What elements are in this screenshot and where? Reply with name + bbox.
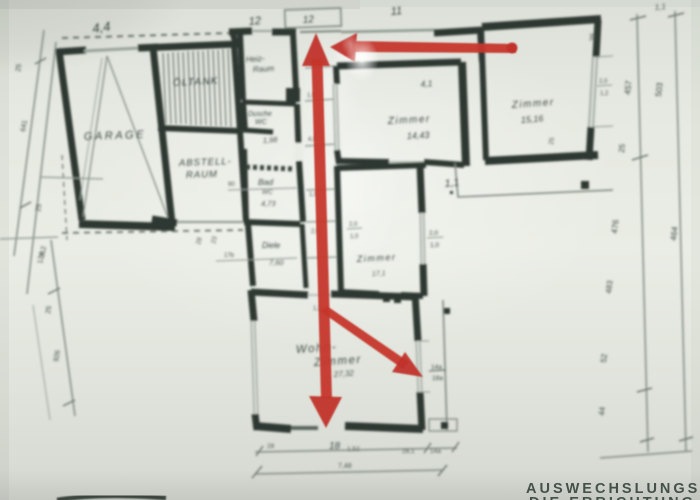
svg-text:ABSTELL-: ABSTELL-: [178, 156, 232, 169]
svg-text:25: 25: [15, 63, 23, 72]
svg-text:476: 476: [609, 219, 621, 235]
svg-text:GARAGE: GARAGE: [84, 129, 146, 143]
svg-text:ÖLTANK: ÖLTANK: [173, 75, 219, 89]
svg-text:11: 11: [390, 5, 402, 18]
svg-text:90: 90: [228, 182, 235, 188]
svg-text:1,1: 1,1: [654, 2, 666, 12]
svg-text:Zimmer: Zimmer: [356, 252, 397, 264]
svg-text:14a: 14a: [430, 448, 441, 455]
svg-text:Diele: Diele: [262, 241, 281, 250]
svg-text:28,1: 28,1: [402, 448, 415, 455]
svg-text:25: 25: [45, 305, 53, 314]
svg-text:12: 12: [248, 15, 261, 28]
svg-text:18a: 18a: [432, 375, 443, 382]
svg-text:464: 464: [668, 226, 680, 242]
svg-text:Zimmer: Zimmer: [387, 114, 431, 127]
svg-text:4,73: 4,73: [261, 199, 276, 208]
svg-text:52: 52: [599, 353, 609, 363]
svg-text:Heiz-: Heiz-: [246, 54, 265, 64]
svg-text:2,0: 2,0: [429, 230, 438, 237]
svg-text:503: 503: [653, 82, 665, 98]
svg-text:1,0: 1,0: [430, 242, 439, 249]
svg-text:Raum: Raum: [253, 64, 275, 74]
svg-text:WC: WC: [255, 119, 268, 126]
svg-text:12: 12: [302, 14, 314, 26]
svg-text:WC: WC: [262, 189, 273, 196]
svg-text:25: 25: [617, 143, 627, 153]
svg-text:15,16: 15,16: [520, 113, 543, 125]
svg-text:1,1: 1,1: [444, 177, 460, 190]
svg-text:4,4: 4,4: [91, 19, 111, 36]
svg-text:Dusche: Dusche: [248, 111, 272, 118]
svg-text:44: 44: [597, 406, 607, 416]
svg-text:17,1: 17,1: [372, 270, 386, 278]
svg-text:1,52: 1,52: [347, 446, 360, 453]
svg-text:25: 25: [548, 137, 556, 145]
svg-text:Bad: Bad: [258, 177, 273, 187]
svg-text:DIE ERRICHTUNG: DIE ERRICHTUNG: [529, 495, 696, 500]
svg-text:1,0: 1,0: [350, 234, 359, 240]
svg-text:25: 25: [35, 203, 43, 212]
svg-text:14a: 14a: [431, 364, 442, 371]
svg-text:14,43: 14,43: [407, 130, 430, 141]
svg-text:25: 25: [588, 32, 598, 42]
svg-text:27,32: 27,32: [333, 369, 355, 379]
svg-text:28: 28: [267, 443, 275, 450]
svg-text:457: 457: [622, 80, 634, 96]
svg-text:2,0: 2,0: [599, 79, 608, 85]
svg-text:17b: 17b: [224, 253, 235, 259]
svg-text:1,98: 1,98: [263, 135, 279, 145]
svg-text:1,2: 1,2: [600, 91, 609, 97]
svg-text:483: 483: [604, 279, 615, 294]
svg-text:RAUM: RAUM: [186, 169, 218, 181]
svg-text:2,0: 2,0: [349, 222, 358, 228]
svg-text:4,1: 4,1: [420, 78, 433, 89]
svg-text:7,48: 7,48: [338, 463, 352, 470]
svg-text:18: 18: [329, 441, 341, 452]
